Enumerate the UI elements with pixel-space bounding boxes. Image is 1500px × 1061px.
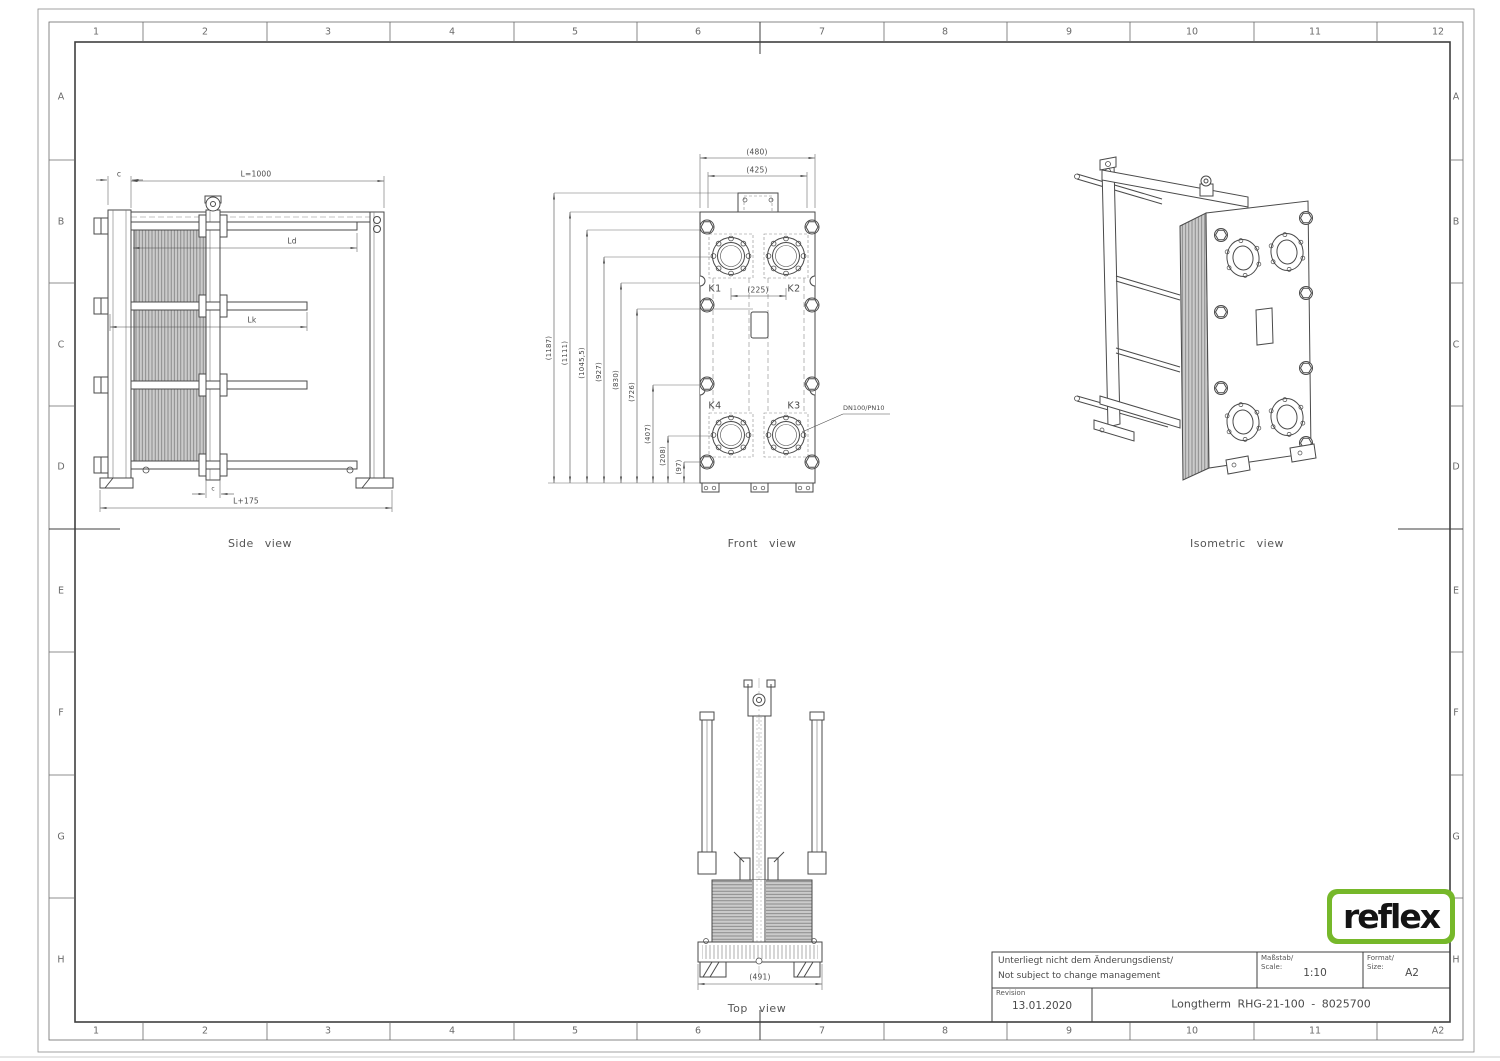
top-view bbox=[698, 678, 826, 977]
front-dim-225: (225) bbox=[747, 286, 768, 295]
grid-right-b: B bbox=[1453, 217, 1460, 228]
grid-bottom-6: 6 bbox=[695, 1026, 701, 1037]
top-view-caption: Top view bbox=[728, 1002, 786, 1015]
grid-right-h: H bbox=[1452, 955, 1459, 966]
front-dim-1187: (1187) bbox=[545, 336, 553, 360]
format-label-de: Format/ bbox=[1367, 954, 1394, 962]
scale-value: 1:10 bbox=[1303, 967, 1327, 979]
grid-top-11: 11 bbox=[1309, 27, 1321, 38]
front-view-caption: Front view bbox=[728, 537, 797, 550]
grid-left-h: H bbox=[57, 955, 64, 966]
grid-top-1: 1 bbox=[93, 27, 99, 38]
grid-top-8: 8 bbox=[942, 27, 948, 38]
grid-bottom-4: 4 bbox=[449, 1026, 455, 1037]
scale-label-de: Maßstab/ bbox=[1261, 954, 1293, 962]
title-note-de: Unterliegt nicht dem Änderungsdienst/ bbox=[998, 956, 1173, 966]
grid-bottom-9: 9 bbox=[1066, 1026, 1072, 1037]
side-dim-length: L=1000 bbox=[241, 170, 272, 179]
grid-left-c: C bbox=[58, 340, 65, 351]
side-dim-c-bottom: c bbox=[211, 486, 214, 493]
grid-top-7: 7 bbox=[819, 27, 825, 38]
grid-top-2: 2 bbox=[202, 27, 208, 38]
inner-frame bbox=[75, 42, 1450, 1022]
front-port-k4-label: K4 bbox=[708, 401, 721, 412]
format-label-en: Size: bbox=[1367, 963, 1384, 971]
grid-bottom-10: 10 bbox=[1186, 1026, 1198, 1037]
grid-bottom-5: 5 bbox=[572, 1026, 578, 1037]
grid-right-e: E bbox=[1453, 586, 1459, 597]
side-dim-lk: Lk bbox=[248, 316, 257, 325]
grid-right-d: D bbox=[1452, 462, 1459, 473]
front-dim-830: (830) bbox=[612, 370, 620, 390]
drawing-title: Longtherm RHG-21-100 - 8025700 bbox=[1171, 998, 1371, 1011]
grid-bottom-a2: A2 bbox=[1432, 1026, 1445, 1037]
side-dim-ld: Ld bbox=[287, 237, 296, 246]
reflex-logo-text: reflex bbox=[1343, 897, 1439, 936]
grid-bottom-11: 11 bbox=[1309, 1026, 1321, 1037]
grid-left-b: B bbox=[58, 217, 65, 228]
grid-top-6: 6 bbox=[695, 27, 701, 38]
front-dim-208: (208) bbox=[659, 446, 667, 466]
grid-bottom-7: 7 bbox=[819, 1026, 825, 1037]
front-view bbox=[700, 193, 890, 492]
front-dim-425: (425) bbox=[746, 166, 767, 175]
grid-left-g: G bbox=[57, 832, 64, 843]
grid-left-f: F bbox=[58, 708, 63, 719]
grid-bottom-8: 8 bbox=[942, 1026, 948, 1037]
front-port-k3-label: K3 bbox=[787, 401, 800, 412]
grid-right-f: F bbox=[1453, 708, 1458, 719]
grid-right-c: C bbox=[1453, 340, 1460, 351]
drawing-canvas bbox=[0, 0, 1500, 1061]
front-dim-1111: (1111) bbox=[561, 341, 569, 365]
revision-date: 13.01.2020 bbox=[1012, 1000, 1072, 1012]
grid-top-4: 4 bbox=[449, 27, 455, 38]
front-port-k1-label: K1 bbox=[708, 284, 721, 295]
side-dim-overall: L+175 bbox=[233, 497, 259, 506]
front-nozzle-spec: DN100/PN10 bbox=[843, 404, 885, 412]
grid-bottom-1: 1 bbox=[93, 1026, 99, 1037]
front-dim-726: (726) bbox=[628, 382, 636, 402]
reflex-logo: reflex bbox=[1327, 889, 1455, 944]
isometric-view bbox=[1075, 157, 1317, 480]
scale-label-en: Scale: bbox=[1261, 963, 1282, 971]
isometric-view-caption: Isometric view bbox=[1190, 537, 1284, 550]
grid-top-3: 3 bbox=[325, 27, 331, 38]
front-dim-480: (480) bbox=[746, 148, 767, 157]
grid-top-9: 9 bbox=[1066, 27, 1072, 38]
top-dim-491: (491) bbox=[749, 973, 770, 982]
grid-bottom-3: 3 bbox=[325, 1026, 331, 1037]
title-note-en: Not subject to change management bbox=[998, 971, 1160, 981]
front-dim-1045: (1045,5) bbox=[578, 347, 586, 379]
side-view bbox=[94, 196, 393, 488]
grid-bottom-2: 2 bbox=[202, 1026, 208, 1037]
grid-top-12: 12 bbox=[1432, 27, 1444, 38]
front-dim-407: (407) bbox=[644, 424, 652, 444]
reflex-logo-inner: reflex bbox=[1332, 894, 1450, 939]
front-port-k2-label: K2 bbox=[787, 284, 800, 295]
grid-left-a: A bbox=[58, 92, 65, 103]
revision-label: Revision bbox=[996, 989, 1025, 997]
side-view-caption: Side view bbox=[228, 537, 292, 550]
grid-right-a: A bbox=[1453, 92, 1460, 103]
grid-left-e: E bbox=[58, 586, 64, 597]
side-dim-c-top: c bbox=[117, 170, 121, 179]
format-value: A2 bbox=[1405, 967, 1419, 979]
front-dim-97: (97) bbox=[675, 459, 683, 474]
grid-left-d: D bbox=[57, 462, 64, 473]
drawing-sheet: 1 2 3 4 5 6 7 8 9 10 11 12 1 2 3 4 5 6 7… bbox=[0, 0, 1500, 1061]
grid-right-g: G bbox=[1452, 832, 1459, 843]
grid-top-10: 10 bbox=[1186, 27, 1198, 38]
grid-top-5: 5 bbox=[572, 27, 578, 38]
front-dim-927: (927) bbox=[595, 362, 603, 382]
